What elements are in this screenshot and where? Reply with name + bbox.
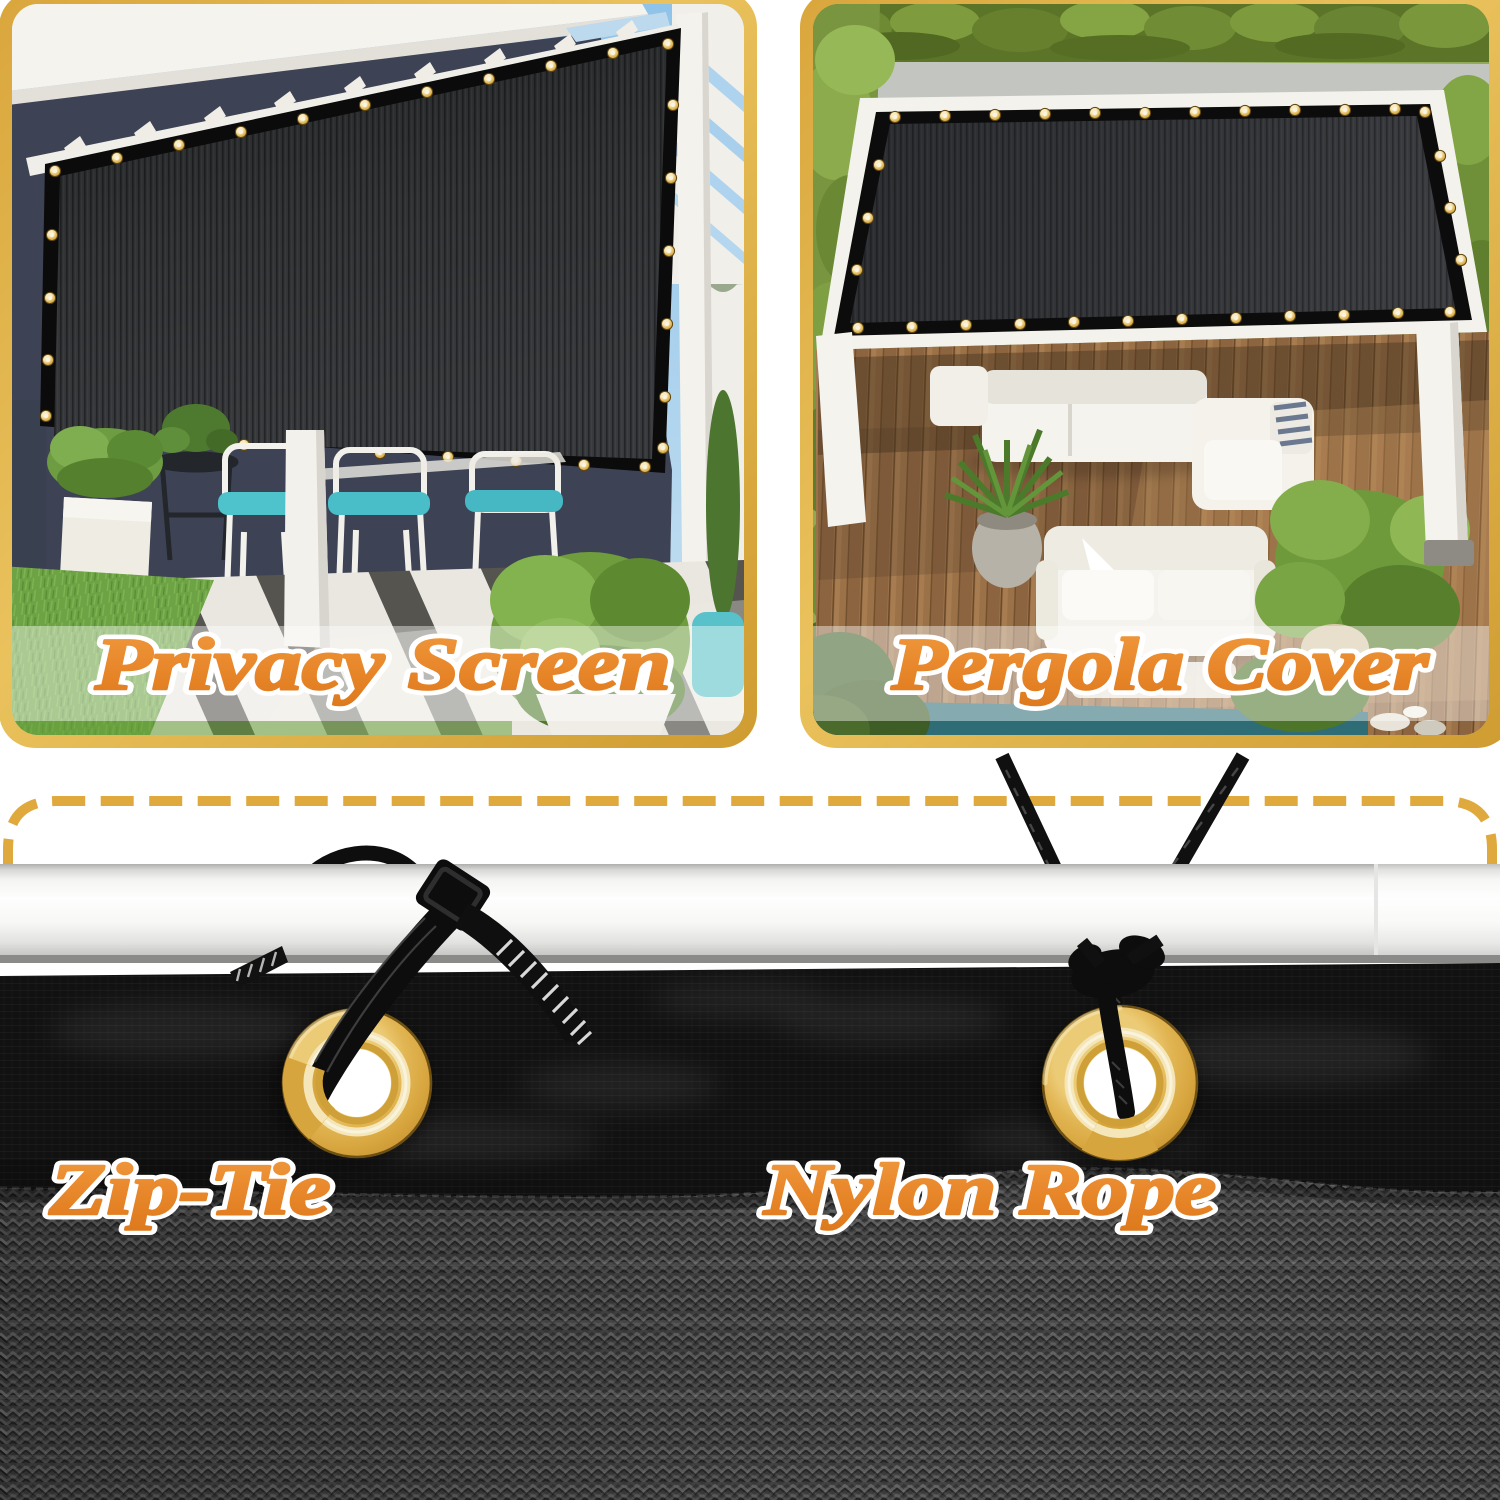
svg-text:Zip-Tie: Zip-Tie <box>48 1149 330 1230</box>
svg-text:Nylon Rope: Nylon Rope <box>763 1149 1216 1230</box>
svg-text:Privacy Screen: Privacy Screen <box>94 624 671 706</box>
svg-text:Pergola Cover: Pergola Cover <box>890 624 1430 706</box>
